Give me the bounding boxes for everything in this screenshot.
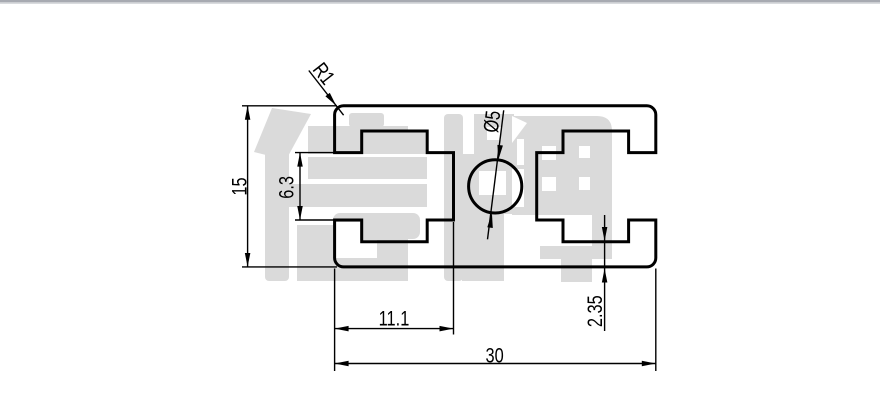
svg-text:2.35: 2.35 xyxy=(583,295,606,327)
svg-text:15: 15 xyxy=(228,177,251,195)
svg-text:30: 30 xyxy=(485,344,503,367)
svg-text:11.1: 11.1 xyxy=(379,307,410,330)
svg-text:6.3: 6.3 xyxy=(275,176,298,199)
svg-text:Ø5: Ø5 xyxy=(479,109,505,134)
